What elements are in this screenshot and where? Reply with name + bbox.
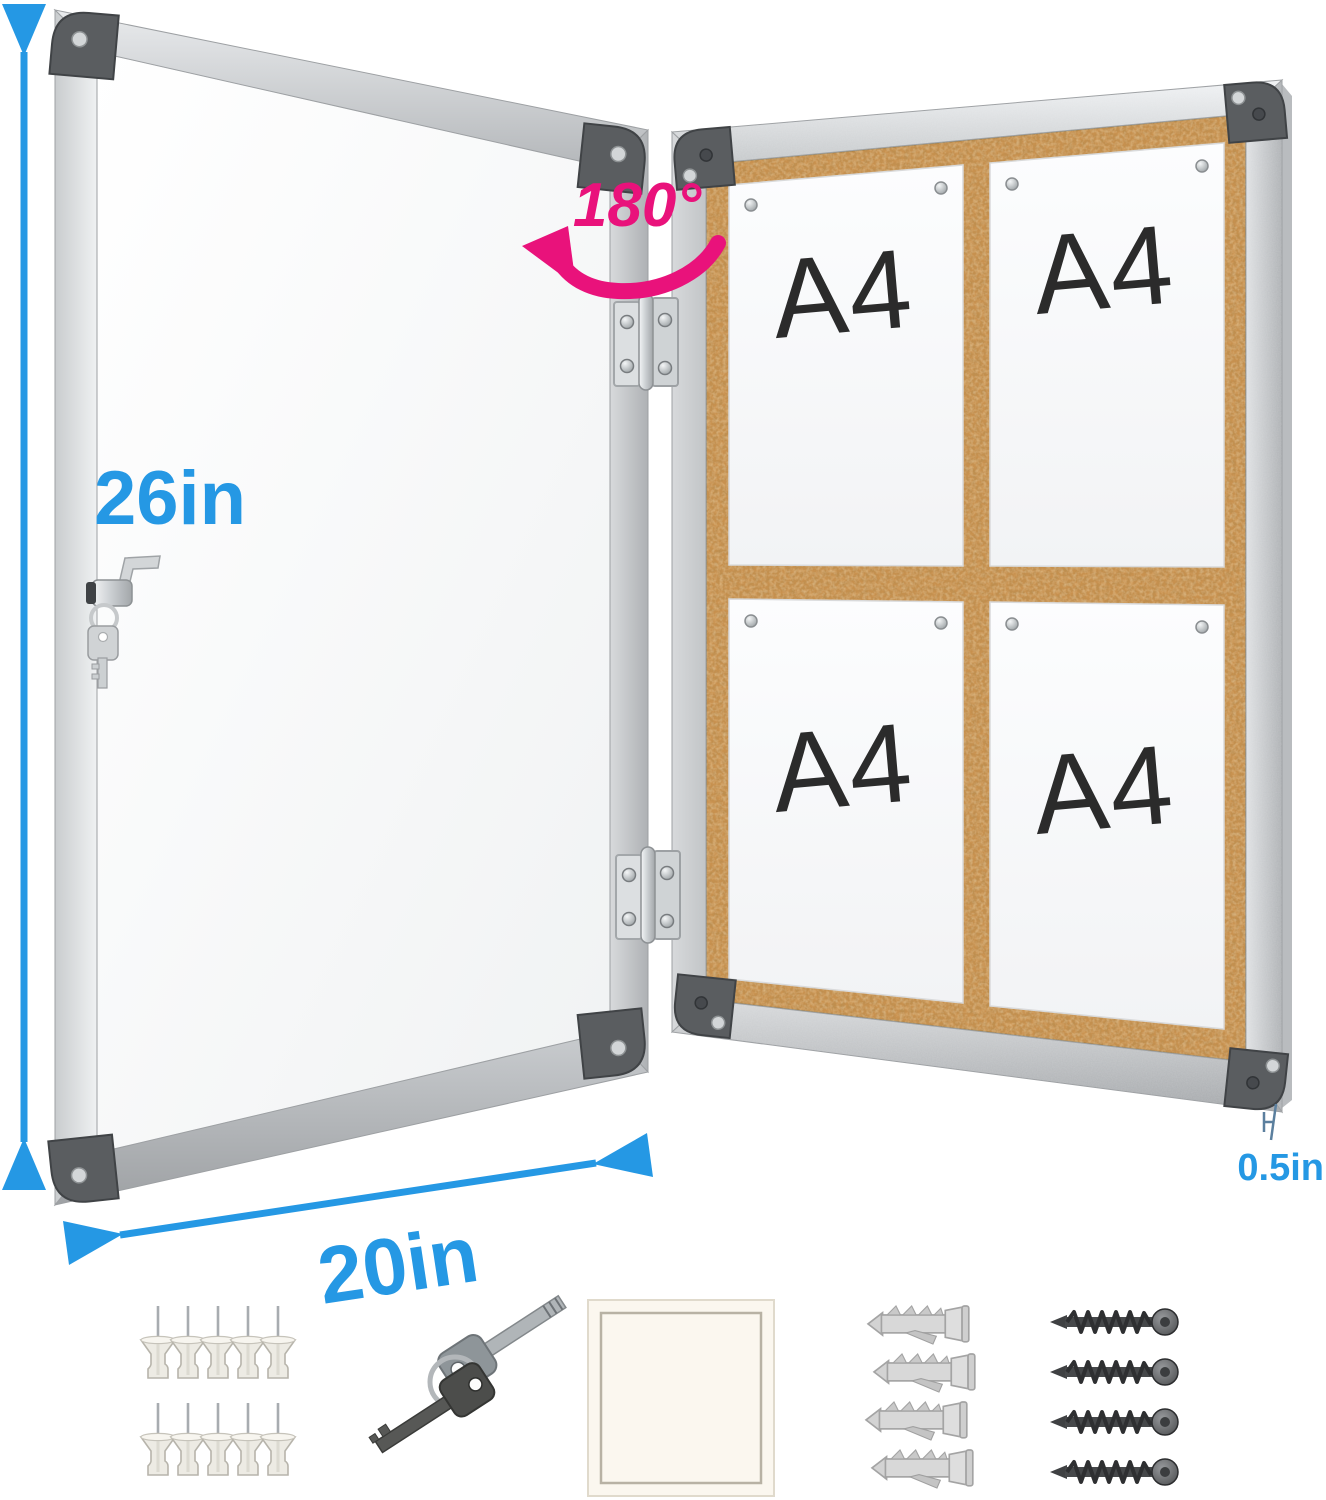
arrowhead-up-icon	[2, 4, 46, 56]
push-pin-icon	[201, 1306, 235, 1378]
push-pin-icon	[261, 1306, 295, 1378]
push-pins-group	[141, 1306, 295, 1475]
rotation-label: 180°	[573, 171, 702, 240]
push-pin-icon	[231, 1403, 265, 1475]
paper-pin-icon	[935, 617, 947, 629]
a4-label: A4	[1028, 201, 1179, 338]
screws-group	[1050, 1309, 1178, 1485]
frame-texture	[1246, 80, 1282, 1112]
thickness-dimension: 0.5in	[1237, 1104, 1324, 1189]
paper-pin-icon	[1196, 621, 1208, 633]
arrowhead-down-icon	[2, 1138, 46, 1190]
wall-anchor-icon	[872, 1450, 973, 1488]
hinge	[616, 847, 680, 943]
arrowhead-left-icon	[63, 1221, 123, 1265]
lock-cylinder	[92, 580, 132, 606]
width-label: 20in	[312, 1209, 483, 1321]
paper-pin-icon	[1196, 160, 1208, 172]
hinge	[614, 294, 678, 390]
wall-anchor-icon	[874, 1354, 975, 1392]
included-accessories	[141, 1283, 1178, 1496]
wall-anchor-icon	[868, 1306, 969, 1344]
screw-icon	[1050, 1359, 1178, 1385]
board-side-edge	[1282, 84, 1292, 1108]
paper-pin-icon	[935, 182, 947, 194]
cork-board-panel: A4 A4 A4 A4	[672, 80, 1292, 1112]
bulletin-board-scene: A4 A4 A4 A4	[0, 0, 1326, 1500]
lock-cylinder-cap	[86, 582, 96, 604]
screw-icon	[1050, 1459, 1178, 1485]
arrowhead-right-icon	[593, 1133, 653, 1177]
a4-label: A4	[1028, 721, 1179, 858]
a4-label: A4	[767, 699, 918, 836]
door-interior-panel	[97, 52, 610, 1153]
push-pin-icon	[231, 1306, 265, 1378]
note-pad-icon	[588, 1300, 774, 1496]
corner-cap	[1224, 80, 1287, 143]
thickness-label: 0.5in	[1237, 1147, 1324, 1189]
push-pin-icon	[171, 1306, 205, 1378]
open-door-panel	[48, 10, 648, 1205]
door-frame-left	[55, 10, 97, 1205]
product-diagram: A4 A4 A4 A4	[0, 0, 1326, 1500]
push-pin-icon	[201, 1403, 235, 1475]
push-pin-icon	[141, 1403, 175, 1475]
paper-pin-icon	[1006, 178, 1018, 190]
push-pin-icon	[171, 1403, 205, 1475]
paper-pin-icon	[745, 615, 757, 627]
screw-icon	[1050, 1409, 1178, 1435]
push-pin-icon	[141, 1306, 175, 1378]
push-pin-icon	[261, 1403, 295, 1475]
wall-anchor-icon	[866, 1402, 967, 1440]
screw-icon	[1050, 1309, 1178, 1335]
a4-paper	[729, 165, 963, 566]
paper-pin-icon	[1006, 618, 1018, 630]
paper-pin-icon	[745, 199, 757, 211]
wall-anchors-group	[866, 1306, 975, 1488]
keys-group	[365, 1283, 574, 1466]
height-label: 26in	[94, 456, 246, 541]
a4-label: A4	[767, 225, 918, 362]
